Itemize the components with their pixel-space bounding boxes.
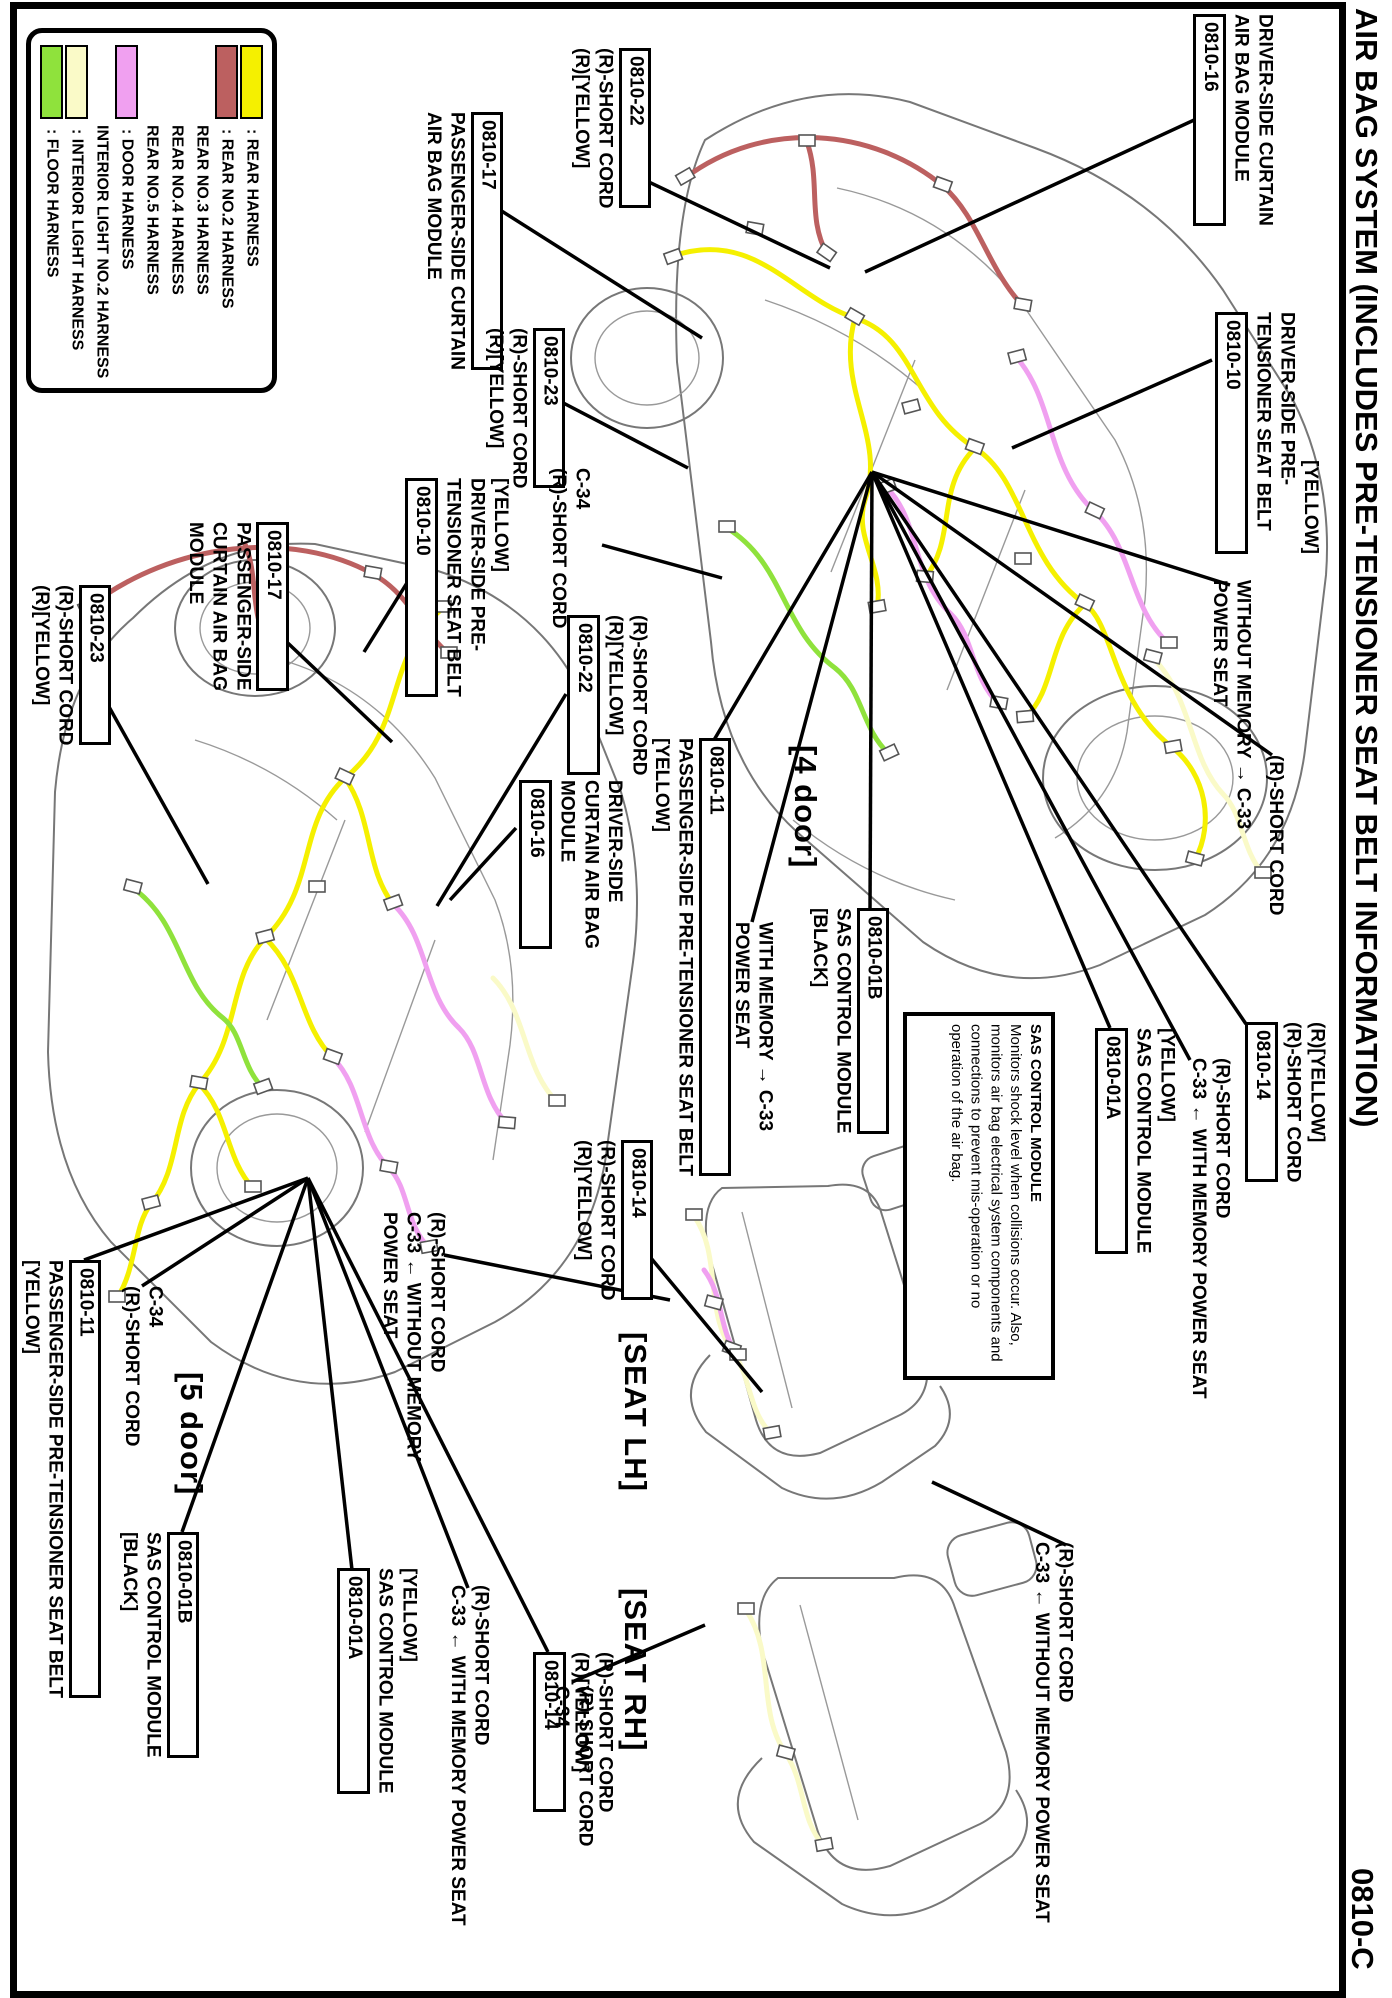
part-number-box: 0810-17 (256, 522, 289, 691)
callout-text: C-33 ← WITH MEMORY POWER SEAT (445, 1585, 468, 1926)
legend-item-label: : FLOOR HARNESS (44, 129, 60, 277)
callout-text: [SEAT LH] (617, 1332, 654, 1492)
legend-item-label: REAR NO.5 HARNESS (144, 125, 160, 295)
sas-note-heading: SAS CONTROL MODULE (1025, 1024, 1045, 1368)
callout-text: TENSIONER SEAT BELT (441, 478, 464, 697)
callout-text: (R)-SHORT CORD (1210, 1058, 1233, 1399)
callout-text: DRIVER-SIDE PRE- (1275, 312, 1298, 554)
callout-text: C-33 ← WITH MEMORY POWER SEAT (1186, 1058, 1209, 1399)
callout-text: (R)[YELLOW] (571, 1140, 594, 1300)
section-seat-rh: [SEAT RH] (616, 1588, 655, 1751)
short-cord-4door: (R)-SHORT CORD (1262, 755, 1287, 915)
callout-text: SAS CONTROL MODULE (1131, 1028, 1154, 1254)
sas-control-module-note: SAS CONTROL MODULE Monitors shock level … (903, 1012, 1055, 1380)
callout-text: PASSENGER-SIDE CURTAIN (445, 112, 468, 370)
callout-text: WITHOUT MEMORY → C-33 (1231, 580, 1254, 829)
legend-color-swatch (240, 45, 263, 119)
callout-text: (R)-SHORT CORD (425, 1212, 448, 1461)
legend-item: : DOOR HARNESS (114, 45, 139, 378)
callout-text: MODULE (555, 780, 578, 949)
pretensioner-driver-4door: [YELLOW]DRIVER-SIDE PRE-TENSIONER SEAT B… (1212, 312, 1322, 554)
part-number-box: 0810-10 (405, 478, 438, 697)
legend-item-label: REAR NO.4 HARNESS (169, 125, 185, 295)
callout-text: [YELLOW] (19, 1260, 42, 1698)
callout-text: [BLACK] (117, 1532, 140, 1758)
without-memory-seatlh: (R)-SHORT CORDC-33 ← WITHOUT MEMORYPOWER… (376, 1212, 448, 1461)
callout-text: MODULE (183, 522, 206, 691)
part-number-box: 0810-01B (857, 908, 890, 1134)
callout-text: CURTAIN AIR BAG (579, 780, 602, 949)
callout-text: [YELLOW] (397, 1568, 420, 1794)
legend-item: REAR NO.3 HARNESS (189, 45, 214, 378)
legend-item: REAR NO.4 HARNESS (164, 45, 189, 378)
callout-text: [YELLOW] (488, 478, 511, 697)
legend-item: REAR NO.5 HARNESS (139, 45, 164, 378)
legend-item: INTERIOR LIGHT NO.2 HARNESS (89, 45, 114, 378)
legend-color-swatch (65, 45, 88, 119)
legend-item-label: INTERIOR LIGHT NO.2 HARNESS (94, 125, 110, 378)
callout-text: (R)-SHORT CORD (1263, 755, 1286, 915)
legend-item: : REAR NO.2 HARNESS (214, 45, 239, 378)
callout-text: AIR BAG MODULE (421, 112, 444, 370)
callout-text: (R)-SHORT CORD (546, 468, 569, 628)
callout-text: C-34 (570, 468, 593, 628)
legend-item-label: REAR NO.3 HARNESS (194, 125, 210, 295)
callout-text: PASSENGER-SIDE PRE-TENSIONER SEAT BELT (673, 738, 696, 1176)
seat-rh-drawing (650, 1460, 1190, 1960)
legend-item: : FLOOR HARNESS (39, 45, 64, 378)
part-number-box: 0810-01A (1095, 1028, 1128, 1254)
with-memory-c33-4door: (R)-SHORT CORDC-33 ← WITH MEMORY POWER S… (1185, 1058, 1234, 1399)
sas-0810-01a-4door: [YELLOW]SAS CONTROL MODULE0810-01A (1092, 1028, 1178, 1254)
callout-text: [SEAT RH] (617, 1588, 654, 1751)
legend-item: : INTERIOR LIGHT HARNESS (64, 45, 89, 378)
callout-text: (R)[YELLOW] (29, 585, 52, 745)
short-cord-0810-14-4door: (R)[YELLOW](R)-SHORT CORD0810-14 (1242, 1022, 1328, 1182)
with-memory-c33-5door: (R)-SHORT CORDC-33 ← WITH MEMORY POWER S… (444, 1585, 493, 1926)
callout-text: (R)[YELLOW] (569, 48, 592, 208)
callout-text: (R)-SHORT CORD (53, 585, 76, 745)
legend: : FLOOR HARNESS: INTERIOR LIGHT HARNESSI… (26, 28, 277, 393)
sas-0810-01b-4door: 0810-01BSAS CONTROL MODULE[BLACK] (806, 908, 892, 1134)
callout-text: DRIVER-SIDE (602, 780, 625, 949)
callout-text: POWER SEAT (377, 1212, 400, 1461)
callout-text: (R)[YELLOW] (1305, 1022, 1328, 1182)
callout-text: C-34 (143, 1286, 166, 1446)
callout-text: C-34 (549, 1686, 572, 1846)
callout-text: [5 door] (173, 1372, 210, 1495)
callout-text: (R)[YELLOW] (483, 328, 506, 488)
callout-text: C-33 ← WITHOUT MEMORY POWER SEAT (1029, 1542, 1052, 1923)
callout-text: [YELLOW] (1155, 1028, 1178, 1254)
callout-text: SAS CONTROL MODULE (373, 1568, 396, 1794)
callout-text: (R)-SHORT CORD (593, 48, 616, 208)
section-seat-lh: [SEAT LH] (616, 1332, 655, 1492)
short-cord-0810-14-seatlh: 0810-14(R)-SHORT CORD(R)[YELLOW] (570, 1140, 656, 1300)
callout-text: DRIVER-SIDE CURTAIN (1253, 14, 1276, 226)
without-memory-seatrh: (R)-SHORT CORDC-33 ← WITHOUT MEMORY POWE… (1028, 1542, 1077, 1923)
callout-text: (R)-SHORT CORD (573, 1686, 596, 1846)
part-number-box: 0810-01B (167, 1532, 200, 1758)
without-memory-4door: WITHOUT MEMORY → C-33POWER SEAT (1206, 580, 1255, 829)
curtain-module-passenger-5door: 0810-17PASSENGER-SIDECURTAIN AIR BAGMODU… (182, 522, 292, 691)
sas-note-body: Monitors shock level when collisions occ… (946, 1024, 1025, 1368)
c34-4door: C-34(R)-SHORT CORD (545, 468, 594, 628)
section-5door: [5 door] (172, 1372, 211, 1495)
callout-text: AIR BAG MODULE (1229, 14, 1252, 226)
callout-text: (R)-SHORT CORD (469, 1585, 492, 1926)
legend-item-label: : REAR HARNESS (244, 129, 260, 267)
c34-seatrh: (R)-SHORT CORDC-34 (548, 1686, 597, 1846)
part-number-box: 0810-16 (519, 780, 552, 949)
part-number-box: 0810-11 (699, 738, 732, 1176)
callout-text: (R)-SHORT CORD (119, 1286, 142, 1446)
callout-text: POWER SEAT (1207, 580, 1230, 829)
callout-text: (R)-SHORT CORD (595, 1140, 618, 1300)
part-number-box: 0810-16 (1193, 14, 1226, 226)
part-number-box: 0810-01A (337, 1568, 370, 1794)
part-number-box: 0810-10 (1215, 312, 1248, 554)
callout-text: [BLACK] (807, 908, 830, 1134)
legend-color-swatch (215, 45, 238, 119)
callout-text: CURTAIN AIR BAG (207, 522, 230, 691)
callout-text: (R)-SHORT CORD (507, 328, 530, 488)
callout-text: TENSIONER SEAT BELT (1251, 312, 1274, 554)
callout-text: WITH MEMORY → C-33 (753, 922, 776, 1131)
callout-text: SAS CONTROL MODULE (831, 908, 854, 1134)
pretensioner-passenger-5door: 0810-11PASSENGER-SIDE PRE-TENSIONER SEAT… (18, 1260, 104, 1698)
callout-text: PASSENGER-SIDE PRE-TENSIONER SEAT BELT (43, 1260, 66, 1698)
pretensioner-driver-5door: [YELLOW]DRIVER-SIDE PRE-TENSIONER SEAT B… (402, 478, 512, 697)
part-number-box: 0810-14 (1245, 1022, 1278, 1182)
callout-text: (R)-SHORT CORD (1053, 1542, 1076, 1923)
part-number-box: 0810-23 (79, 585, 112, 745)
page-code: 0810-C (1344, 1868, 1380, 1970)
legend-item-label: : REAR NO.2 HARNESS (219, 129, 235, 309)
callout-text: (R)-SHORT CORD (1281, 1022, 1304, 1182)
part-number-box: 0810-23 (533, 328, 566, 488)
c34-5door: C-34(R)-SHORT CORD (118, 1286, 167, 1446)
short-cord-0810-22-4door: 0810-22(R)-SHORT CORD(R)[YELLOW] (568, 48, 654, 208)
curtain-module-driver-5door: DRIVER-SIDECURTAIN AIR BAGMODULE0810-16 (516, 780, 626, 949)
pretensioner-passenger-4door: 0810-11PASSENGER-SIDE PRE-TENSIONER SEAT… (648, 738, 734, 1176)
legend-item-label: : INTERIOR LIGHT HARNESS (69, 129, 85, 350)
callout-text: [YELLOW] (649, 738, 672, 1176)
short-cord-0810-23-5door: 0810-23(R)-SHORT CORD(R)[YELLOW] (28, 585, 114, 745)
callout-text: (R)[YELLOW] (603, 615, 626, 775)
diagram-title: AIR BAG SYSTEM (INCLUDES PRE-TENSIONER S… (1348, 8, 1384, 1127)
legend-item: : REAR HARNESS (239, 45, 264, 378)
callout-text: [YELLOW] (1298, 312, 1321, 554)
with-memory-4door: WITH MEMORY → C-33POWER SEAT (728, 922, 777, 1131)
section-4door: [4 door] (786, 745, 825, 868)
callout-text: [4 door] (787, 745, 824, 868)
legend-item-label: : DOOR HARNESS (119, 129, 135, 269)
part-number-box: 0810-14 (621, 1140, 654, 1300)
callout-text: DRIVER-SIDE PRE- (465, 478, 488, 697)
page: { "page": { "title": "AIR BAG SYSTEM (IN… (0, 0, 1392, 1998)
sas-0810-01a-5door: [YELLOW]SAS CONTROL MODULE0810-01A (334, 1568, 420, 1794)
part-number-box: 0810-11 (69, 1260, 102, 1698)
legend-color-swatch (40, 45, 63, 119)
callout-text: (R)-SHORT CORD (627, 615, 650, 775)
part-number-box: 0810-22 (567, 615, 600, 775)
short-cord-0810-22-5door: (R)-SHORT CORD(R)[YELLOW]0810-22 (564, 615, 650, 775)
callout-text: C-33 ← WITHOUT MEMORY (401, 1212, 424, 1461)
legend-color-swatch (115, 45, 138, 119)
callout-text: PASSENGER-SIDE (231, 522, 254, 691)
short-cord-0810-23-4door: 0810-23(R)-SHORT CORD(R)[YELLOW] (482, 328, 568, 488)
part-number-box: 0810-22 (619, 48, 652, 208)
curtain-module-driver-4door: DRIVER-SIDE CURTAINAIR BAG MODULE0810-16 (1190, 14, 1276, 226)
callout-text: SAS CONTROL MODULE (141, 1532, 164, 1758)
sas-0810-01b-5door: 0810-01BSAS CONTROL MODULE[BLACK] (116, 1532, 202, 1758)
